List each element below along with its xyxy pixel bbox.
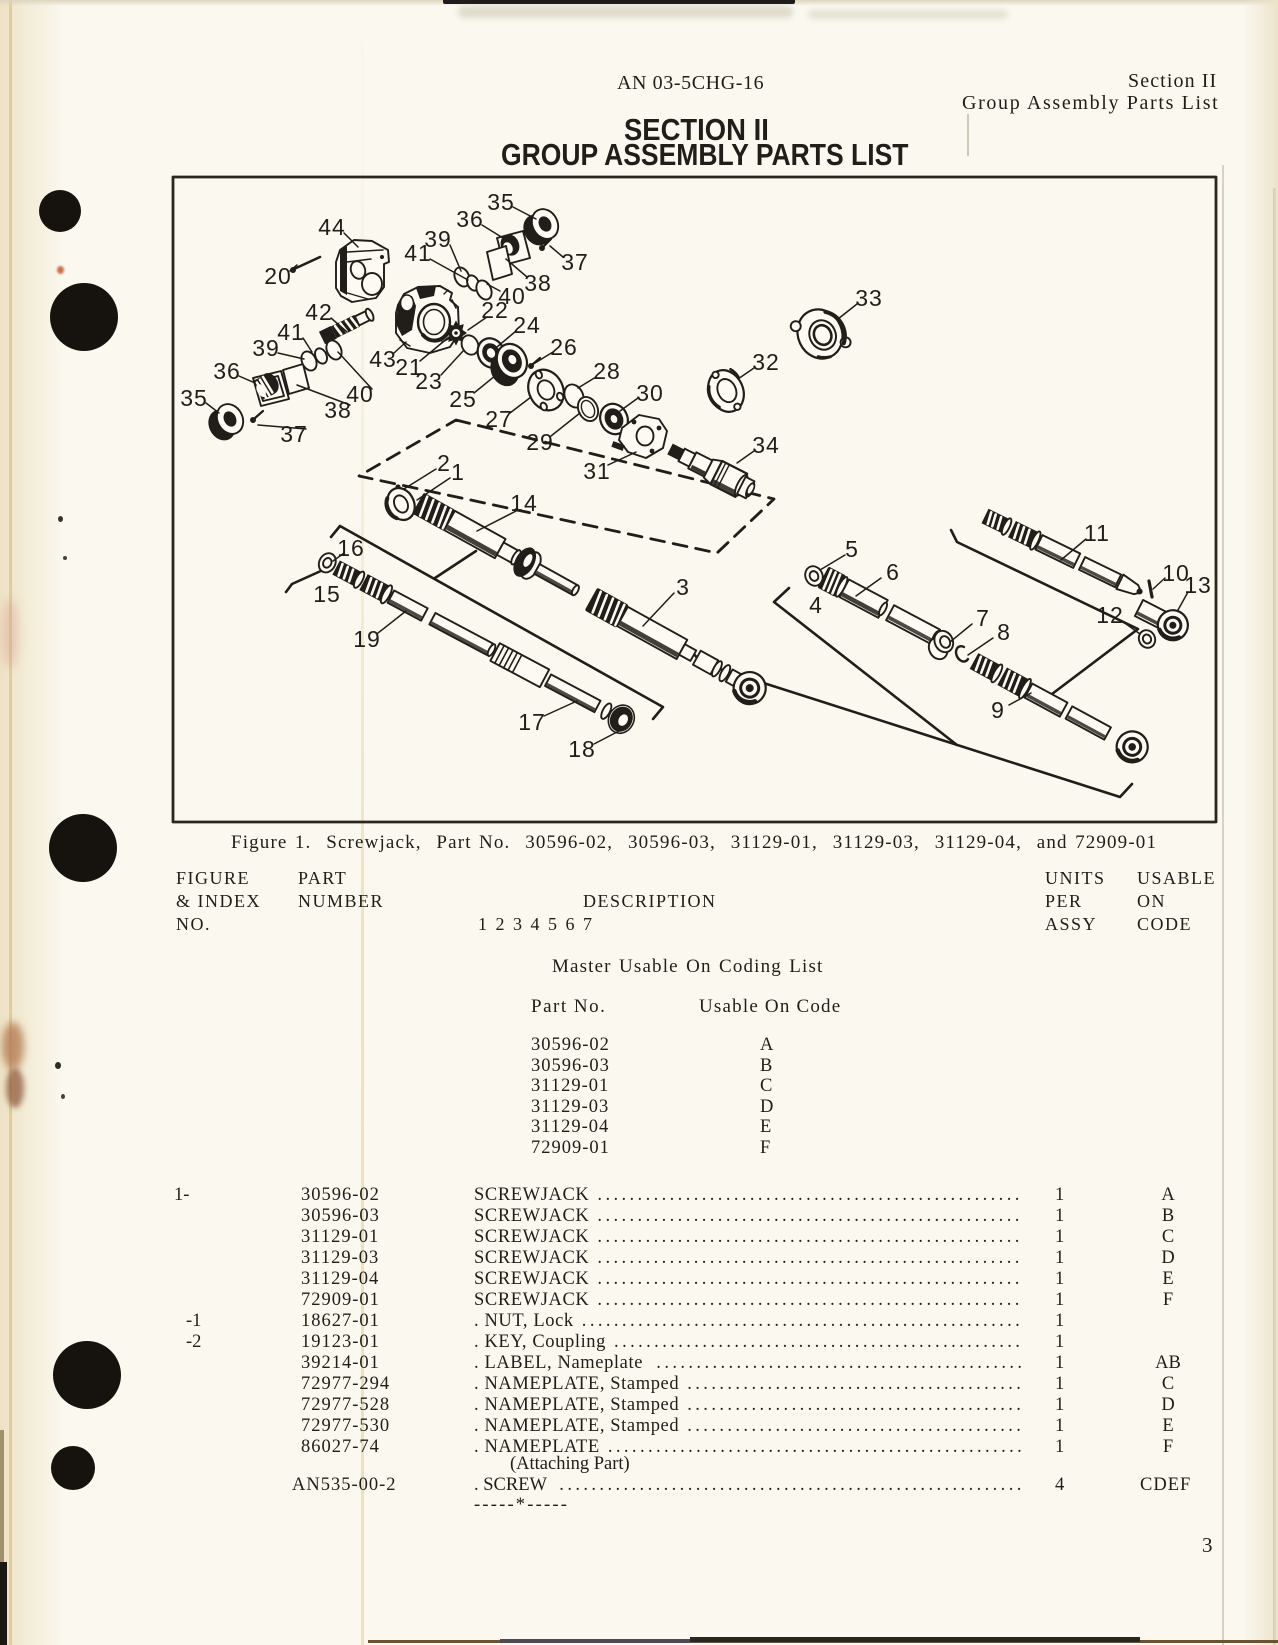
svg-text:32: 32 [752,349,780,375]
svg-text:23: 23 [415,368,443,394]
svg-text:6: 6 [886,559,900,585]
svg-text:26: 26 [550,334,578,360]
svg-text:35: 35 [180,385,208,411]
svg-text:27: 27 [485,406,513,432]
svg-text:11: 11 [1084,520,1110,546]
svg-text:38: 38 [324,397,352,423]
svg-text:28: 28 [593,358,621,384]
svg-text:18: 18 [568,736,596,762]
svg-text:41: 41 [404,240,432,266]
svg-text:44: 44 [318,214,346,240]
svg-text:36: 36 [213,358,241,384]
svg-text:7: 7 [976,605,990,631]
svg-text:3: 3 [676,574,690,600]
svg-text:37: 37 [280,421,308,447]
svg-text:8: 8 [997,619,1011,645]
svg-text:13: 13 [1184,572,1212,598]
svg-text:1: 1 [451,459,465,485]
svg-text:19: 19 [353,626,381,652]
svg-text:36: 36 [456,206,484,232]
svg-text:34: 34 [752,432,780,458]
svg-text:39: 39 [252,335,280,361]
svg-text:38: 38 [524,270,552,296]
svg-text:9: 9 [991,697,1005,723]
svg-text:4: 4 [809,592,823,618]
svg-text:12: 12 [1096,602,1124,628]
svg-text:17: 17 [518,709,546,735]
svg-text:31: 31 [583,458,611,484]
svg-text:20: 20 [264,263,292,289]
svg-text:29: 29 [526,429,554,455]
svg-text:2: 2 [437,450,451,476]
svg-text:33: 33 [855,285,883,311]
svg-text:16: 16 [337,535,365,561]
svg-text:41: 41 [277,319,305,345]
svg-text:14: 14 [510,490,538,516]
svg-text:5: 5 [845,536,859,562]
svg-text:35: 35 [487,189,515,215]
svg-text:25: 25 [449,386,477,412]
svg-text:42: 42 [305,299,333,325]
svg-text:15: 15 [313,581,341,607]
svg-text:37: 37 [561,249,589,275]
svg-text:24: 24 [513,312,541,338]
svg-text:22: 22 [481,297,509,323]
svg-text:30: 30 [636,380,664,406]
svg-text:43: 43 [369,346,397,372]
